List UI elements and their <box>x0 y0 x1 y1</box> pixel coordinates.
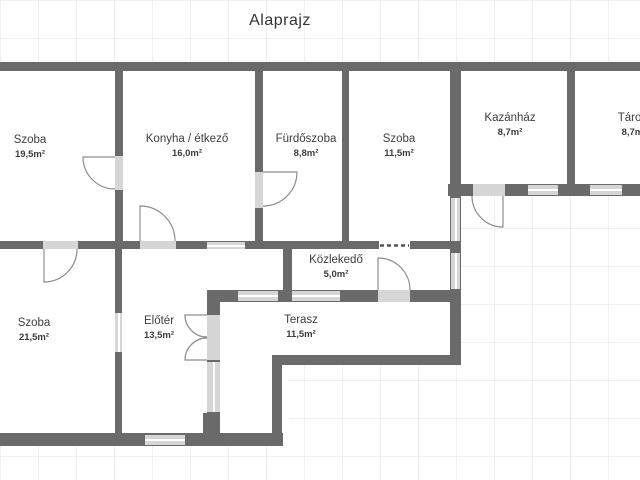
window <box>207 362 220 412</box>
wall <box>272 360 282 435</box>
opening-gap <box>379 241 410 249</box>
room-label: Fürdőszoba8,8m² <box>276 132 337 160</box>
door-opening <box>378 290 410 302</box>
wall <box>255 70 263 242</box>
room-name: Konyha / étkező <box>146 132 228 146</box>
page-title: Alaprajz <box>249 12 311 30</box>
window-glass-line <box>528 189 558 191</box>
room-area: 5,0m² <box>309 269 363 281</box>
room-label: Kazánház8,7m² <box>484 111 535 139</box>
window-glass-line <box>213 362 215 412</box>
window-glass-line <box>455 198 457 241</box>
window-glass-line <box>238 295 278 297</box>
wall <box>0 62 640 71</box>
room-name: Kazánház <box>484 111 535 125</box>
room-label: Szoba21,5m² <box>18 316 51 344</box>
wall <box>283 249 292 302</box>
wall <box>207 302 220 315</box>
room-label: Közlekedő5,0m² <box>309 253 363 281</box>
room-name: Előtér <box>144 314 174 328</box>
room-label: Tároló8,7m² <box>618 111 640 139</box>
wall <box>567 70 575 196</box>
window <box>145 435 185 445</box>
room-area: 21,5m² <box>18 332 51 344</box>
room-name: Szoba <box>14 133 47 147</box>
room-name: Szoba <box>383 132 416 146</box>
door-opening <box>207 315 220 360</box>
door-opening <box>473 184 505 196</box>
door-opening <box>115 156 123 190</box>
room-label: Terasz11,5m² <box>284 313 318 341</box>
window-glass-line <box>455 253 457 289</box>
floor-area <box>213 358 275 435</box>
wall <box>342 70 349 242</box>
room-name: Terasz <box>284 313 318 327</box>
room-area: 13,5m² <box>144 330 174 342</box>
window <box>528 185 558 195</box>
room-name: Szoba <box>18 316 51 330</box>
window-glass-line <box>292 295 340 297</box>
room-label: Előtér13,5m² <box>144 314 174 342</box>
window-glass-line <box>145 439 185 441</box>
window <box>590 185 622 195</box>
window <box>115 313 122 352</box>
window <box>292 291 340 301</box>
wall <box>0 433 283 446</box>
door-opening <box>140 241 176 249</box>
window <box>207 242 245 249</box>
wall <box>410 241 413 249</box>
room-label: Konyha / étkező16,0m² <box>146 132 228 160</box>
room-name: Közlekedő <box>309 253 363 267</box>
door-opening <box>255 172 263 208</box>
window-glass-line <box>118 313 120 352</box>
door-opening <box>43 241 78 249</box>
room-name: Tároló <box>618 111 640 125</box>
window <box>451 253 460 289</box>
room-area: 11,5m² <box>284 329 318 341</box>
window <box>451 198 460 241</box>
room-area: 8,8m² <box>276 148 337 160</box>
wall <box>272 355 457 365</box>
room-area: 16,0m² <box>146 148 228 160</box>
window <box>238 291 278 301</box>
room-area: 19,5m² <box>14 149 47 161</box>
room-area: 11,5m² <box>383 148 416 160</box>
room-label: Szoba11,5m² <box>383 132 416 160</box>
floor-plan: Szoba19,5m²Konyha / étkező16,0m²Fürdőszo… <box>0 0 640 480</box>
window-glass-line <box>590 189 622 191</box>
room-label: Szoba19,5m² <box>14 133 47 161</box>
room-area: 8,7m² <box>618 127 640 139</box>
window-glass-line <box>207 245 245 247</box>
room-floor <box>213 296 452 358</box>
room-area: 8,7m² <box>484 127 535 139</box>
room-name: Fürdőszoba <box>276 132 337 146</box>
